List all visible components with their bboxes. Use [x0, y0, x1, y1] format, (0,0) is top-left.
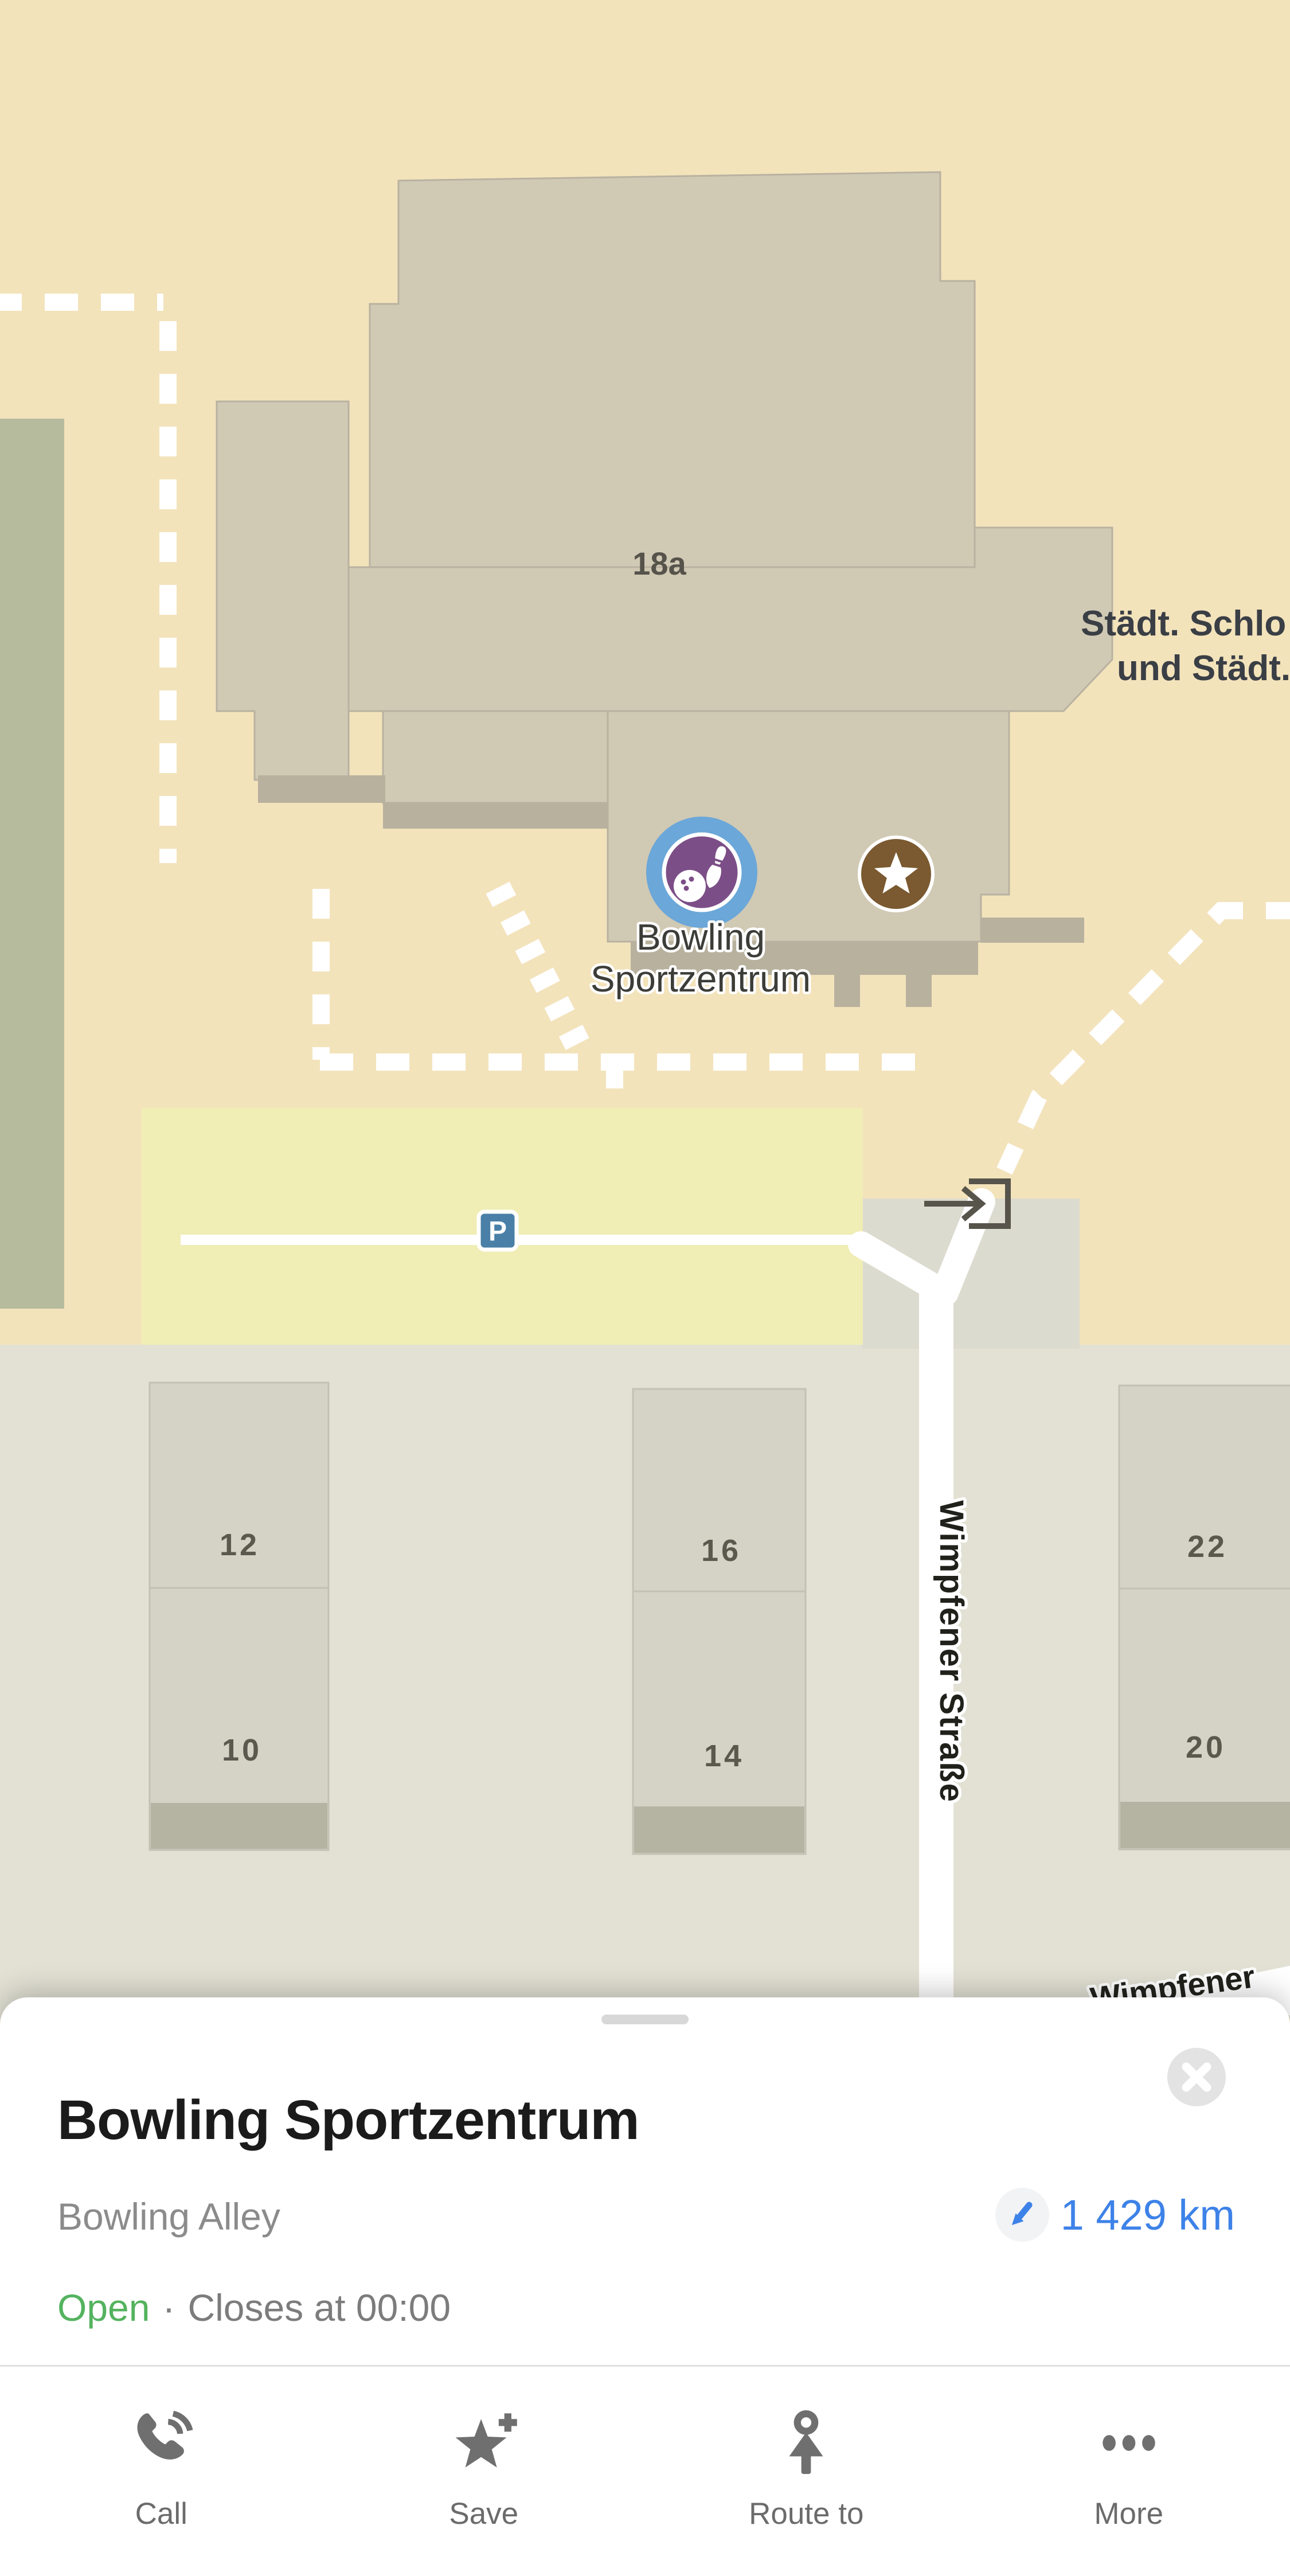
distance-indicator: 1 429 km [995, 2188, 1235, 2242]
poi-label-line2: Sportzentrum [591, 958, 811, 1000]
status-open-label: Open [57, 2286, 150, 2329]
more-dots-icon [1095, 2409, 1163, 2477]
green-area [0, 419, 64, 1309]
street-name-vertical: Wimpfener Straße [933, 1500, 970, 1803]
poi-label-line1: Bowling [636, 916, 765, 958]
call-label: Call [135, 2496, 187, 2531]
more-label: More [1094, 2496, 1163, 2531]
save-label: Save [449, 2496, 518, 2531]
status-hours: Closes at 00:00 [187, 2286, 451, 2329]
phone-icon [127, 2409, 195, 2477]
save-button[interactable]: Save [323, 2367, 646, 2573]
drag-handle[interactable] [601, 2015, 689, 2024]
house-number: 10 [222, 1733, 262, 1767]
place-detail-sheet: Bowling Sportzentrum Bowling Alley 1 429… [0, 1997, 1290, 2576]
parking-marker[interactable]: P [479, 1212, 517, 1250]
opening-status: Open · Closes at 00:00 [57, 2286, 451, 2329]
route-to-label: Route to [749, 2496, 863, 2531]
place-category: Bowling Alley [57, 2195, 280, 2238]
house-number: 14 [704, 1739, 744, 1773]
building-number-label: 18a [632, 545, 686, 581]
map-canvas[interactable]: P Bowling S [0, 0, 1290, 2019]
parking-badge-letter: P [488, 1216, 507, 1247]
house-number: 12 [220, 1528, 260, 1562]
action-bar: Call Save Route to [0, 2367, 1290, 2573]
favorite-star-marker[interactable] [859, 837, 933, 911]
place-title: Bowling Sportzentrum [57, 2088, 639, 2152]
house-number: 22 [1187, 1529, 1228, 1564]
right-building-label-line1: Städt. Schlo [1081, 604, 1286, 643]
residential-buildings [150, 1383, 1290, 1854]
close-button[interactable] [1167, 2048, 1226, 2106]
call-button[interactable]: Call [0, 2367, 323, 2573]
distance-value: 1 429 km [1061, 2191, 1235, 2239]
route-to-button[interactable]: Route to [645, 2367, 968, 2573]
status-separator: · [162, 2286, 175, 2329]
direction-arrow-icon [995, 2188, 1049, 2242]
maps-app-screen: P Bowling S [0, 0, 1290, 2576]
right-building-label-line2: und Städt. [1117, 649, 1290, 688]
house-number: 20 [1186, 1730, 1226, 1765]
save-star-icon [450, 2409, 518, 2477]
more-button[interactable]: More [968, 2367, 1290, 2573]
house-number: 16 [701, 1533, 741, 1568]
route-icon [772, 2409, 840, 2477]
bowling-poi-marker[interactable] [646, 817, 757, 928]
close-icon [1168, 2048, 1225, 2106]
